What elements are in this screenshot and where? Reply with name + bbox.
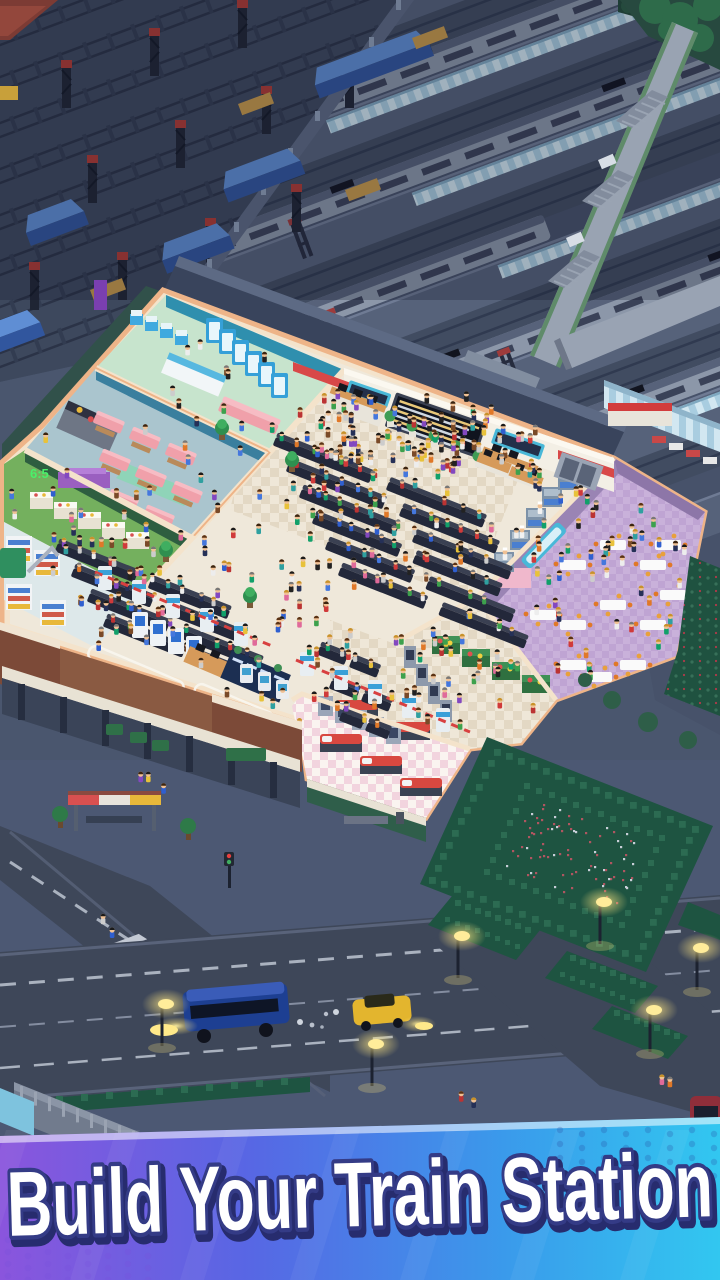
svg-text:Build Your Train Station: Build Your Train Station bbox=[6, 1134, 715, 1256]
svg-text:6:5: 6:5 bbox=[30, 466, 49, 481]
